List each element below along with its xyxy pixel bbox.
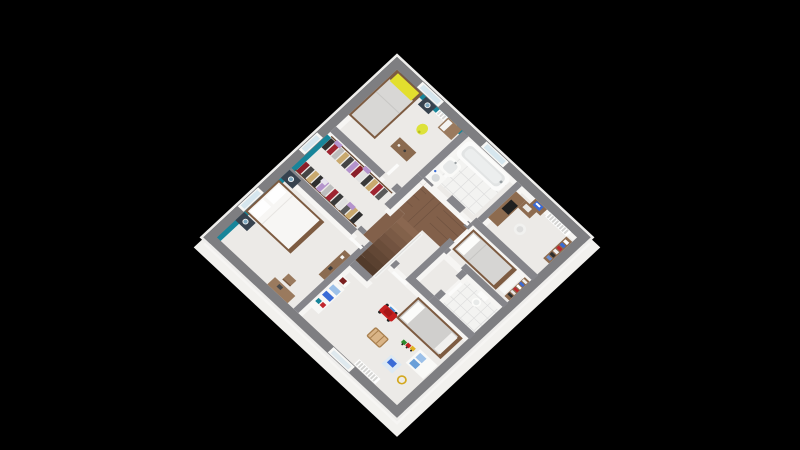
floorplan-3d-render bbox=[0, 0, 800, 450]
render-viewport bbox=[0, 0, 800, 450]
